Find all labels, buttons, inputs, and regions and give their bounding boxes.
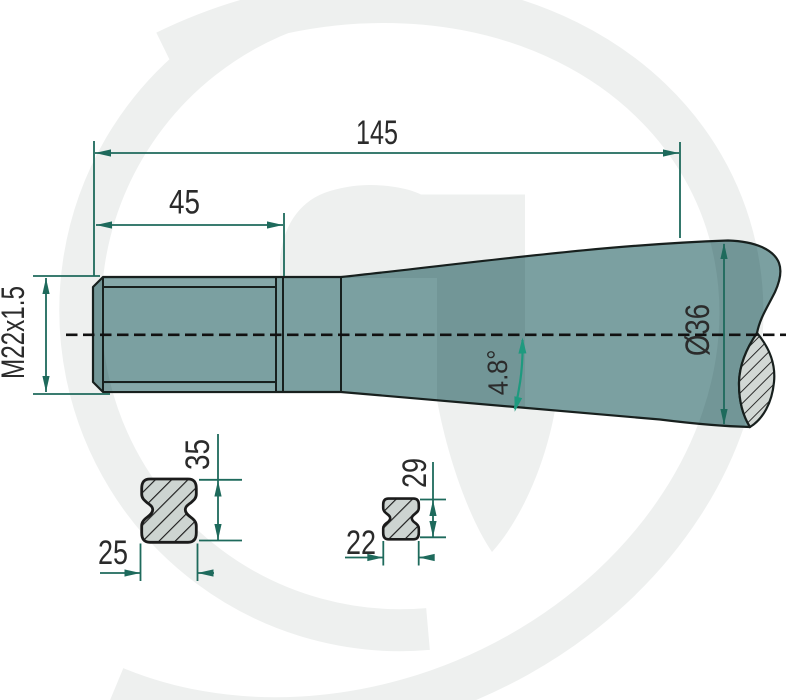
svg-text:45: 45 [169,184,200,222]
svg-text:35: 35 [179,439,217,470]
svg-text:M22x1.5: M22x1.5 [0,286,31,379]
svg-text:29: 29 [396,458,434,488]
svg-text:Ø36: Ø36 [679,304,717,356]
svg-text:4.8°: 4.8° [481,349,514,396]
svg-text:145: 145 [356,114,398,152]
svg-text:22: 22 [346,524,376,562]
svg-text:25: 25 [98,534,128,572]
